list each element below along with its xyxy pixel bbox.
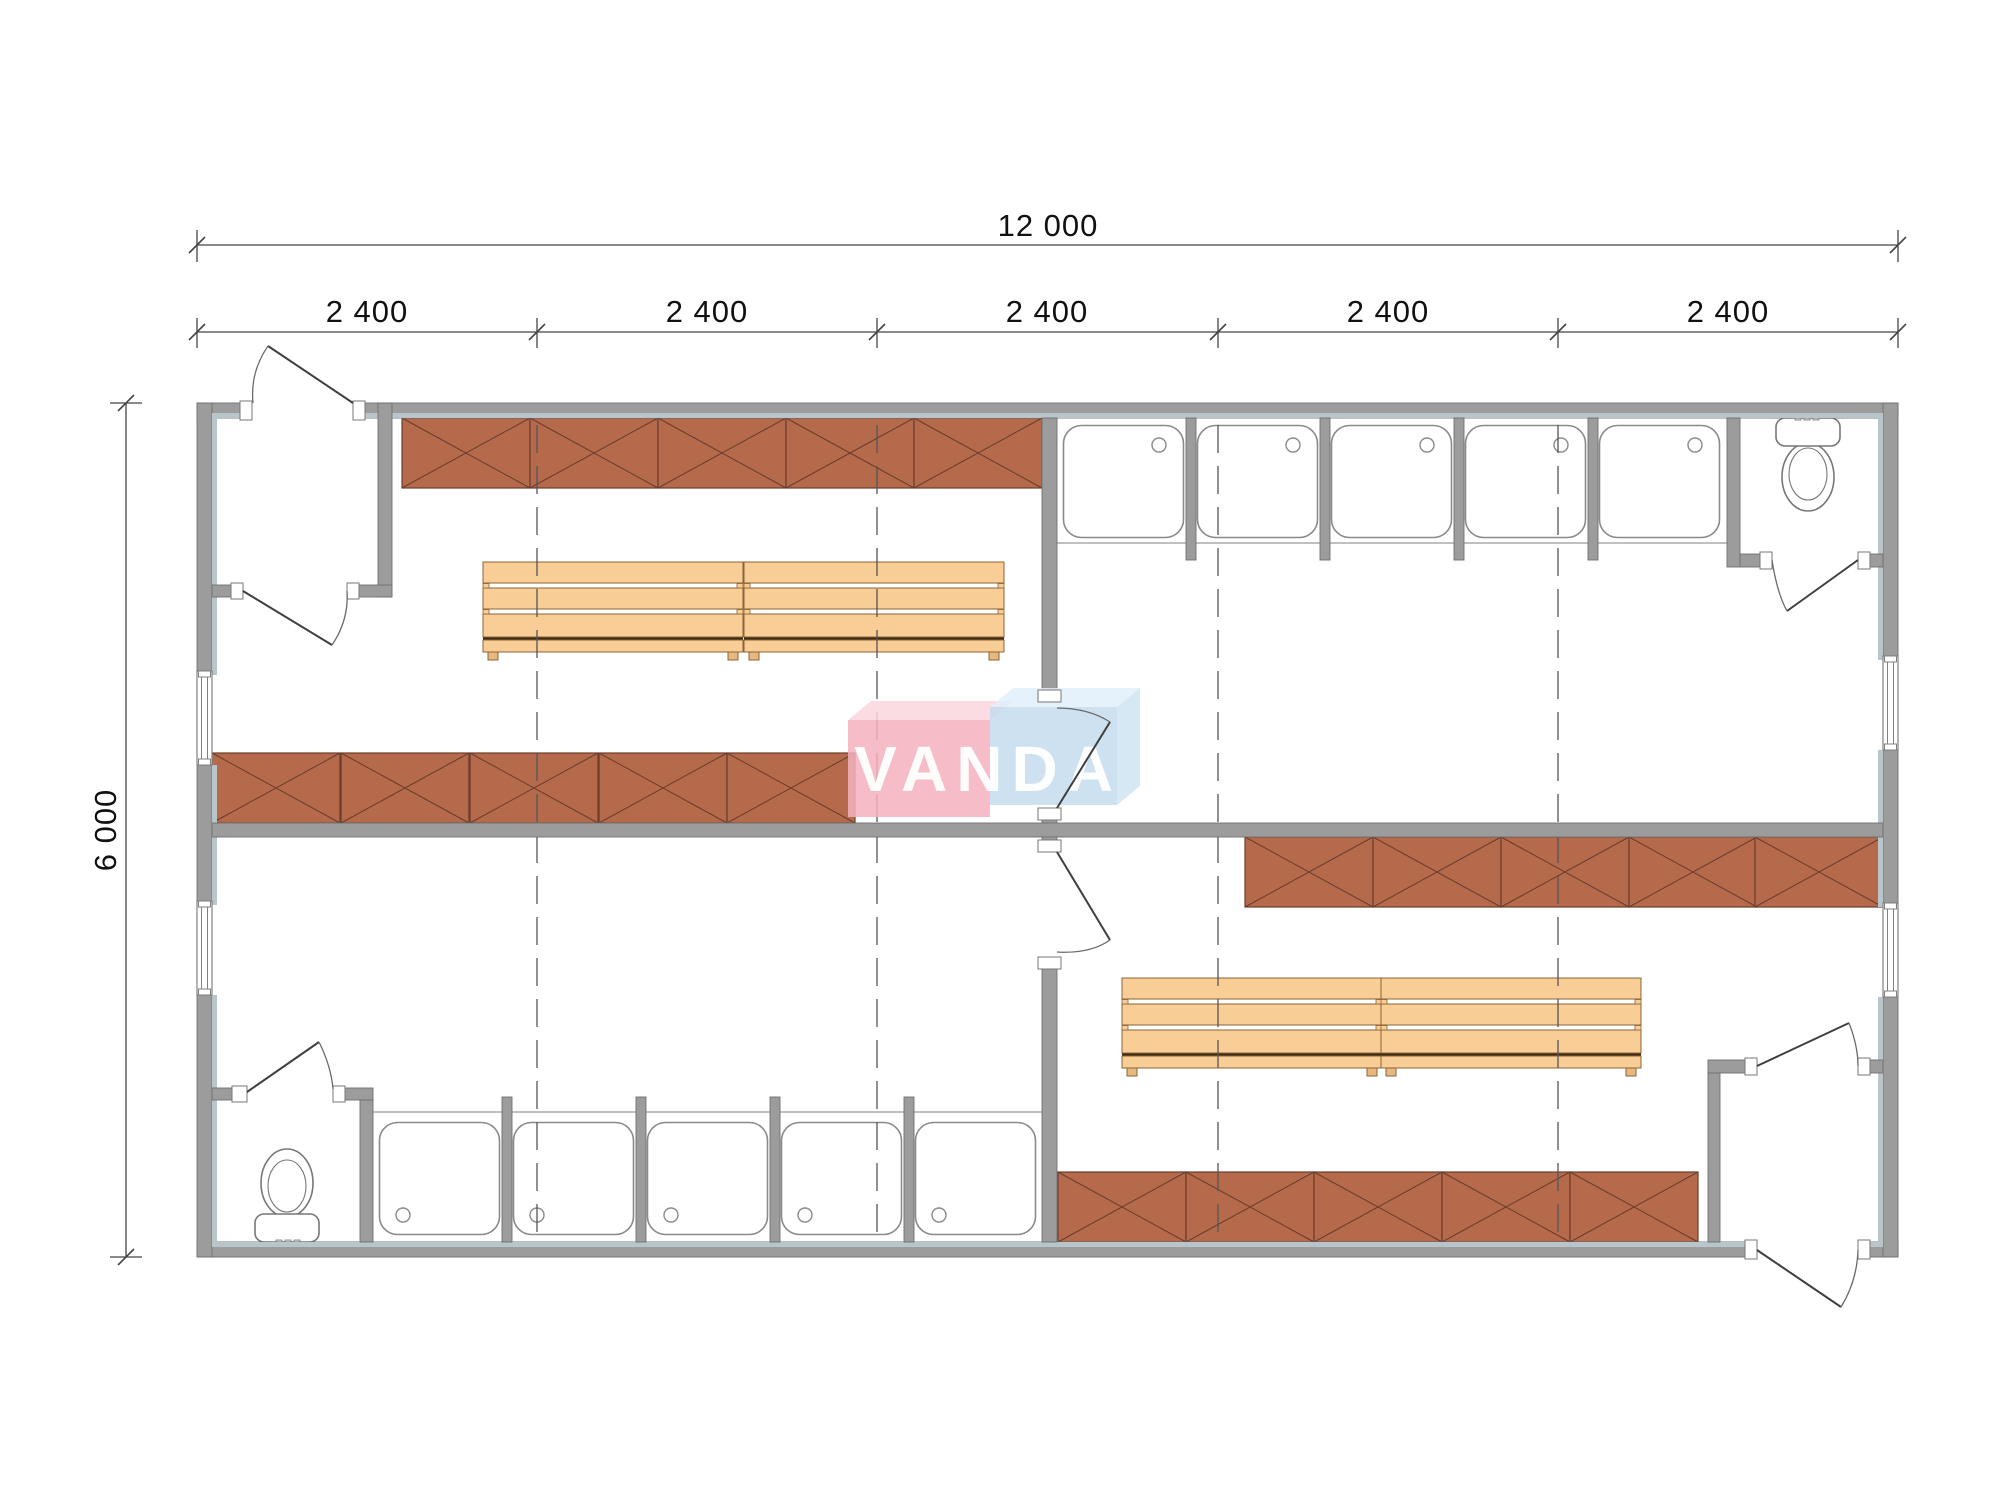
dimension-label-total-width: 12 000 — [998, 208, 1099, 243]
window-left-bottom — [197, 901, 212, 995]
window-left-top — [197, 671, 212, 765]
locker-row-top-left — [402, 418, 1042, 488]
shower-row-bottom — [373, 1112, 1042, 1235]
floor-plan-canvas: VANDA — [0, 0, 2000, 1505]
window-right-top — [1883, 656, 1898, 750]
dimension-label-module-4: 2 400 — [1347, 294, 1430, 329]
vanda-watermark: VANDA — [848, 688, 1140, 817]
dimension-label-module-2: 2 400 — [666, 294, 749, 329]
locker-row-bottom-right — [1058, 1172, 1698, 1242]
dimension-label-module-5: 2 400 — [1687, 294, 1770, 329]
window-right-bottom — [1883, 903, 1898, 997]
dimension-label-module-1: 2 400 — [326, 294, 409, 329]
dimension-label-module-3: 2 400 — [1006, 294, 1089, 329]
locker-row-mid-right — [1245, 837, 1883, 907]
floor-plan-drawing: VANDA — [0, 0, 2000, 1505]
shower-row-top — [1057, 426, 1727, 544]
dimension-label-total-height: 6 000 — [88, 789, 123, 872]
locker-row-mid-left — [212, 753, 855, 823]
